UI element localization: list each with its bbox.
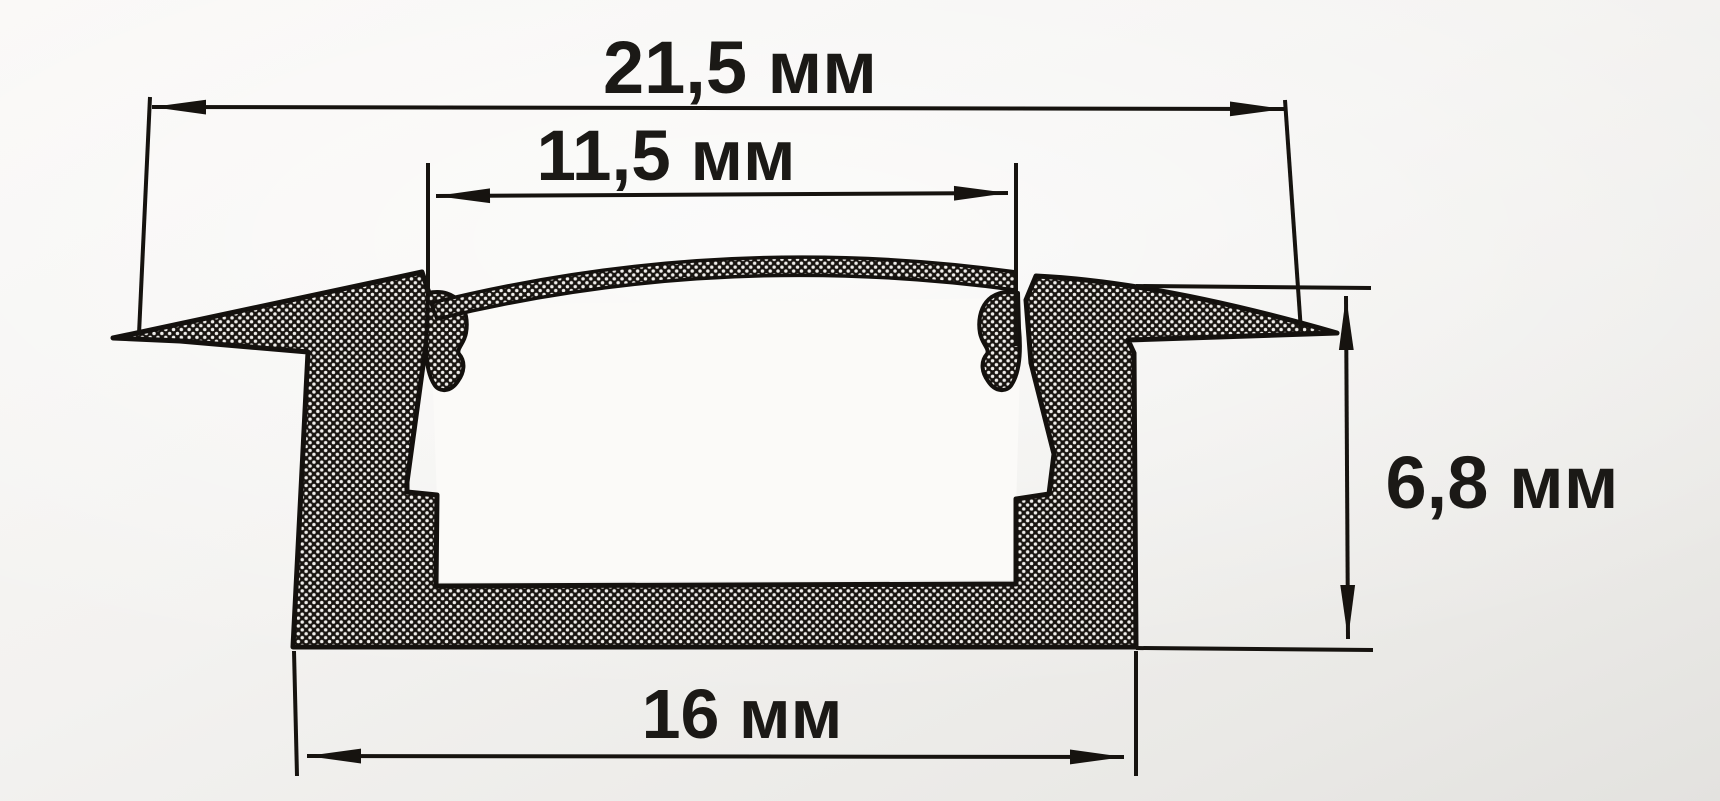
extension-line-top [1136, 286, 1371, 288]
dimension-base-width: 16 мм [294, 651, 1136, 776]
dimension-line [307, 756, 1124, 757]
extension-line-bottom [1136, 648, 1373, 650]
profile-drawing: 21,5 мм 11,5 мм 6,8 мм 16 мм [0, 0, 1720, 801]
extension-line-right [1285, 100, 1301, 331]
dimension-label-overall-width: 21,5 мм [603, 26, 877, 109]
dimension-label-height: 6,8 мм [1386, 441, 1619, 524]
channel-interior [430, 298, 1022, 582]
extension-line-left [294, 651, 297, 776]
extension-line-left [139, 97, 150, 334]
dimension-line [1346, 296, 1348, 639]
right-clip-hook [979, 292, 1020, 390]
dimension-label-base-width: 16 мм [642, 675, 843, 753]
drawing-canvas: 21,5 мм 11,5 мм 6,8 мм 16 мм [0, 0, 1720, 801]
profile-cross-section [113, 257, 1337, 647]
dimension-label-opening-width: 11,5 мм [536, 117, 795, 196]
dimension-height: 6,8 мм [1136, 286, 1618, 650]
